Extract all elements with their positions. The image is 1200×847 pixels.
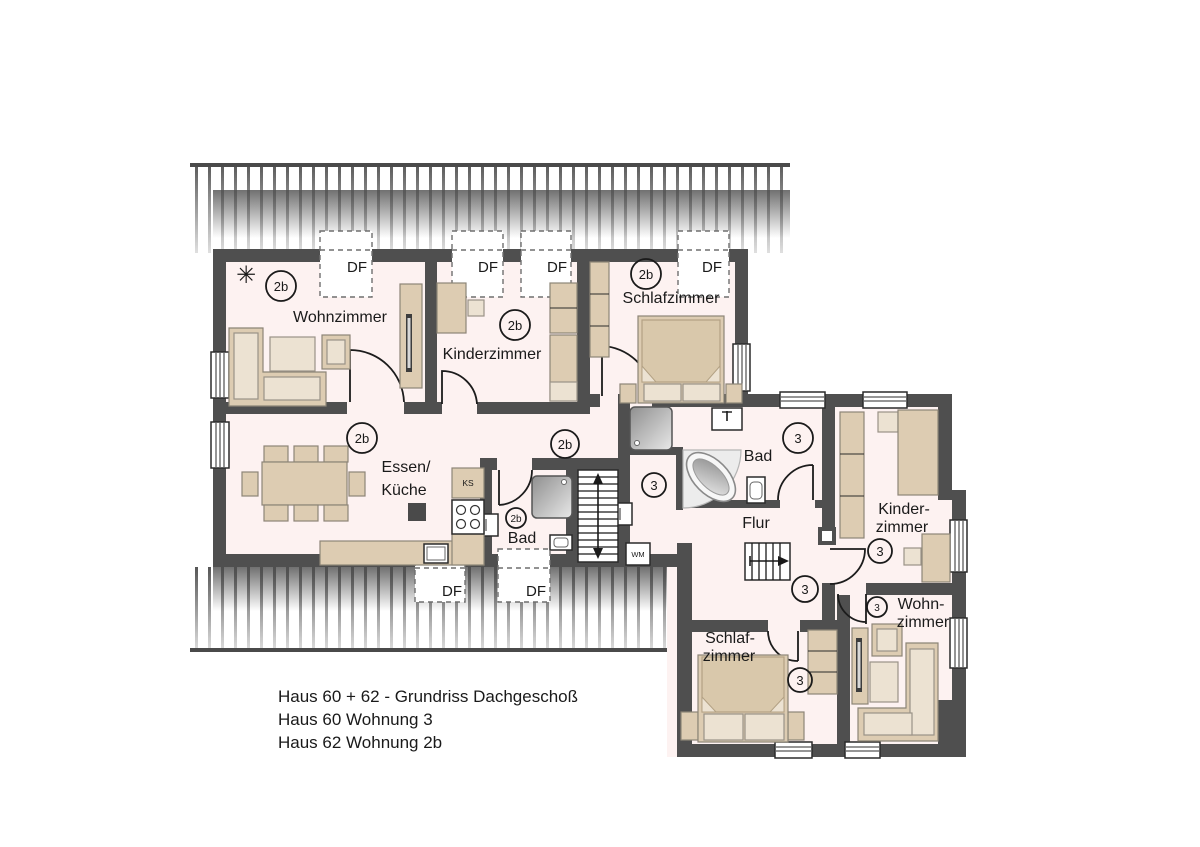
label-flur-3: Flur bbox=[742, 515, 770, 532]
title-line-1: Haus 60 + 62 - Grundriss Dachgeschoß bbox=[278, 687, 578, 706]
nightstand bbox=[620, 384, 636, 403]
label-wohnzimmer-3-line1: Wohn- bbox=[898, 596, 945, 613]
wall-schlaf3-wohn3-divider bbox=[837, 595, 850, 757]
svg-text:2b: 2b bbox=[355, 431, 369, 446]
window-ap3-top-bad bbox=[780, 392, 825, 408]
bed-pillow bbox=[878, 412, 898, 432]
kitchen-block bbox=[408, 503, 426, 521]
svg-text:3: 3 bbox=[801, 582, 808, 597]
label-schlafzimmer-3-line2: zimmer bbox=[703, 648, 756, 665]
fridge: KS bbox=[452, 468, 484, 498]
double-bed bbox=[638, 316, 724, 403]
wall-wohnzimmer-bottom-stub bbox=[404, 402, 437, 414]
svg-text:3: 3 bbox=[874, 603, 880, 614]
svg-text:2b: 2b bbox=[510, 514, 522, 525]
floor-plan-page: DF DF DF DF DF DF bbox=[0, 0, 1200, 847]
dining-chair bbox=[242, 472, 258, 496]
dining-chair bbox=[324, 505, 348, 521]
svg-text:3: 3 bbox=[794, 431, 801, 446]
label-essen-line1: Essen/ bbox=[382, 459, 431, 476]
title-block: Haus 60 + 62 - Grundriss Dachgeschoß Hau… bbox=[278, 687, 578, 752]
svg-text:2b: 2b bbox=[639, 267, 653, 282]
svg-text:2b: 2b bbox=[558, 437, 572, 452]
wardrobe bbox=[550, 283, 577, 333]
wall-bad2b-top-right bbox=[532, 458, 630, 470]
window-2b-left-wohnzimmer bbox=[211, 352, 229, 398]
dining-table bbox=[262, 462, 347, 505]
dormer-label: DF bbox=[442, 583, 462, 600]
window-2b-left-essen bbox=[211, 422, 229, 468]
wall-entry-nook-right bbox=[676, 447, 683, 510]
window-ap3-bottom-wohnzimmer bbox=[845, 742, 880, 758]
flur-steps bbox=[745, 543, 790, 580]
armchair bbox=[870, 662, 898, 702]
wall-ap3-right-upper bbox=[938, 394, 952, 494]
label-kinderzimmer-3-line2: zimmer bbox=[876, 519, 929, 536]
window-ap3-right-kinderzimmer bbox=[950, 520, 967, 572]
label-schlafzimmer-3-line1: Schlaf- bbox=[705, 630, 755, 647]
title-line-3: Haus 62 Wohnung 2b bbox=[278, 733, 442, 752]
double-bed bbox=[698, 655, 788, 742]
sink-3 bbox=[712, 408, 742, 430]
label-bad-3: Bad bbox=[744, 448, 772, 465]
bed bbox=[550, 335, 577, 401]
nightstand bbox=[681, 712, 698, 740]
wall-schlafzimmer-bottom-left bbox=[577, 394, 600, 407]
chimney-flue bbox=[822, 531, 832, 541]
dining-chair bbox=[264, 446, 288, 462]
dining-chair bbox=[324, 446, 348, 462]
desk-chair bbox=[904, 548, 921, 565]
dormer-label: DF bbox=[702, 259, 722, 276]
armchair bbox=[322, 335, 350, 369]
wall-kinder-schlaf-divider bbox=[577, 262, 590, 414]
dormer-label: DF bbox=[526, 583, 546, 600]
toilet-3 bbox=[747, 477, 765, 503]
washing-machine-label: WM bbox=[631, 550, 644, 559]
svg-text:3: 3 bbox=[650, 478, 657, 493]
wall-bad3-door-stub bbox=[815, 500, 822, 508]
wall-wohn-kinder-divider bbox=[425, 262, 437, 414]
svg-text:2b: 2b bbox=[508, 318, 522, 333]
desk bbox=[437, 283, 466, 333]
shower-drain-icon bbox=[635, 441, 640, 446]
svg-text:3: 3 bbox=[876, 544, 883, 559]
label-bad-2b: Bad bbox=[508, 530, 536, 547]
dormer-label: DF bbox=[547, 259, 567, 276]
nightstand bbox=[788, 712, 804, 740]
wall-bad3-kinder3-divider bbox=[822, 394, 835, 527]
label-essen-line2: Küche bbox=[381, 482, 426, 499]
label-schlafzimmer-2b: Schlafzimmer bbox=[623, 290, 721, 307]
dining-chair bbox=[264, 505, 288, 521]
label-kinderzimmer-2b: Kinderzimmer bbox=[443, 346, 542, 363]
label-wohnzimmer-2b: Wohnzimmer bbox=[293, 309, 388, 326]
wall-ap3-left bbox=[618, 394, 630, 567]
wall-wohn3-top bbox=[866, 583, 952, 595]
shower-drain-icon bbox=[562, 480, 567, 485]
wardrobe bbox=[808, 630, 837, 694]
wall-kinderzimmer-bottom bbox=[477, 402, 577, 414]
tv-cabinet bbox=[400, 284, 422, 388]
dormer-top-1: DF bbox=[320, 231, 372, 297]
label-wohnzimmer-3-line2: zimmer bbox=[897, 614, 950, 631]
wall-ap3-bottom bbox=[677, 744, 966, 757]
svg-text:3: 3 bbox=[796, 673, 803, 688]
plant-icon: ✳ bbox=[236, 262, 256, 289]
dormer-bottom-2: DF bbox=[498, 549, 550, 602]
dormer-label: DF bbox=[478, 259, 498, 276]
bed bbox=[898, 410, 938, 495]
window-ap3-right-wohnzimmer bbox=[950, 618, 967, 668]
fridge-label: KS bbox=[462, 478, 474, 488]
label-kinderzimmer-3-line1: Kinder- bbox=[878, 501, 930, 518]
dormer-label: DF bbox=[347, 259, 367, 276]
main-staircase bbox=[578, 470, 618, 562]
window-ap3-top-kinderzimmer bbox=[863, 392, 907, 408]
washing-machine: WM bbox=[626, 543, 650, 565]
wardrobe bbox=[590, 262, 609, 357]
tv-cabinet bbox=[852, 628, 868, 704]
title-line-2: Haus 60 Wohnung 3 bbox=[278, 710, 433, 729]
nightstand bbox=[726, 384, 742, 403]
dining-chair bbox=[349, 472, 365, 496]
desk bbox=[922, 534, 950, 582]
wall-2b-left bbox=[213, 249, 226, 567]
desk-chair bbox=[468, 300, 484, 316]
wall-ap3-right-lower bbox=[938, 700, 966, 757]
dormer-top-4: DF bbox=[678, 231, 729, 297]
wardrobe bbox=[840, 412, 864, 538]
dining-chair bbox=[294, 446, 318, 462]
dining-chair bbox=[294, 505, 318, 521]
kitchen-sink bbox=[424, 544, 448, 563]
stove bbox=[452, 500, 484, 534]
svg-text:2b: 2b bbox=[274, 279, 288, 294]
window-ap3-bottom-schlafzimmer bbox=[775, 742, 812, 758]
coffee-table bbox=[270, 337, 315, 371]
floor-plan-drawing: DF DF DF DF DF DF bbox=[0, 0, 1200, 847]
